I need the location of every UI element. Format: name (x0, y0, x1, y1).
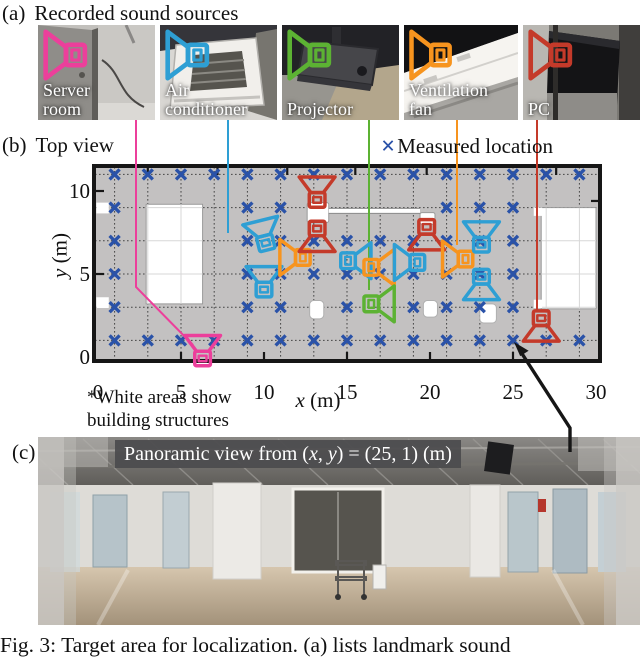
measured-location-mark (442, 302, 452, 312)
photo-pc: PC (523, 25, 640, 120)
measured-location-mark (442, 269, 452, 279)
speaker-air-conditioner (394, 244, 424, 280)
photo-label-server-room: Serverroom (43, 81, 90, 119)
panorama-photo: Panoramic view from (x, y) = (25, 1) (m) (38, 437, 640, 625)
y-axis-label: y (m) (48, 216, 73, 296)
measured-location-mark (309, 335, 319, 345)
measured-location-mark (408, 302, 418, 312)
section-c-label: (c) (12, 440, 35, 465)
measured-location-marker-icon: × (381, 133, 395, 160)
measured-location-mark (375, 236, 385, 246)
speaker-air-conditioner (464, 269, 500, 299)
measured-location-mark (475, 335, 485, 345)
measured-location-mark (342, 269, 352, 279)
measured-location-mark (342, 169, 352, 179)
measured-location-mark (408, 269, 418, 279)
legend-label: Measured location (397, 134, 553, 158)
measured-location-mark (110, 236, 120, 246)
x-axis-label: x (m) (258, 388, 378, 413)
speaker-air-conditioner (464, 222, 500, 252)
measured-location-mark (276, 203, 286, 213)
photo-label-air-conditioner: Airconditioner (165, 81, 247, 119)
measured-location-mark (242, 269, 252, 279)
measured-location-mark (276, 169, 286, 179)
measured-location-mark (541, 335, 551, 345)
map-structures (96, 203, 596, 323)
section-a-text: Recorded sound sources (34, 1, 238, 25)
measured-location-mark (541, 169, 551, 179)
note-line-1: *White areas show (87, 387, 232, 410)
measured-location-mark (442, 203, 452, 213)
measured-location-mark (475, 269, 485, 279)
measured-location-mark (508, 302, 518, 312)
speaker-pc (523, 311, 559, 341)
sound-source-speakers (185, 177, 559, 366)
speaker-ventilation-fan (280, 239, 310, 275)
svg-text:10: 10 (69, 179, 90, 203)
measured-location-mark (143, 169, 153, 179)
photo-row: ServerroomAirconditionerProjectorVentila… (0, 25, 640, 120)
measured-location-mark (475, 203, 485, 213)
measured-location-mark (276, 269, 286, 279)
measured-location-mark (475, 236, 485, 246)
measured-location-mark (342, 302, 352, 312)
measured-location-mark (508, 169, 518, 179)
measured-location-mark (242, 203, 252, 213)
measured-location-mark (209, 335, 219, 345)
speaker-ventilation-fan (364, 249, 394, 285)
measured-location-mark (242, 236, 252, 246)
speaker-projector (364, 286, 394, 322)
measured-location-mark (309, 169, 319, 179)
speaker-ventilation-fan (443, 241, 473, 277)
measured-location-mark (242, 169, 252, 179)
measured-location-mark (375, 335, 385, 345)
map-ticks (96, 168, 598, 359)
measured-location-mark (342, 236, 352, 246)
measured-location-mark (408, 335, 418, 345)
section-a-title: (a)Recorded sound sources (2, 1, 238, 26)
measured-location-mark (209, 169, 219, 179)
section-a-label: (a) (2, 1, 25, 25)
speaker-server-room (185, 336, 221, 366)
svg-text:5: 5 (80, 262, 91, 286)
panorama-caption: Panoramic view from (x, y) = (25, 1) (m) (115, 440, 461, 468)
measured-location-mark (110, 335, 120, 345)
measured-location-mark (375, 269, 385, 279)
photo-label-projector: Projector (287, 100, 353, 119)
measured-location-mark (508, 335, 518, 345)
measured-location-mark (242, 335, 252, 345)
speaker-pc (299, 177, 335, 207)
callout-line-pink (136, 120, 193, 345)
measured-location-mark (176, 335, 186, 345)
measured-location-mark (176, 169, 186, 179)
photo-label-ventilation-fan: Ventilationfan (409, 81, 488, 119)
measured-location-mark (342, 335, 352, 345)
measured-location-mark (110, 169, 120, 179)
measured-location-mark (442, 335, 452, 345)
measured-location-mark (508, 269, 518, 279)
photo-ventilation-fan: Ventilationfan (404, 25, 518, 120)
measured-location-mark (442, 236, 452, 246)
measured-location-mark (309, 269, 319, 279)
speaker-pc (409, 220, 445, 250)
measured-location-mark (276, 236, 286, 246)
measured-location-mark (508, 236, 518, 246)
map-border (94, 166, 600, 361)
measured-location-mark (574, 335, 584, 345)
measured-location-mark (475, 169, 485, 179)
speaker-pc (299, 221, 335, 251)
photo-air-conditioner: Airconditioner (160, 25, 277, 120)
measured-location-mark (276, 335, 286, 345)
speaker-air-conditioner (246, 267, 282, 297)
svg-text:30: 30 (586, 380, 607, 404)
photo-label-pc: PC (528, 100, 550, 119)
measured-location-mark (242, 302, 252, 312)
note-line-2: building structures (87, 410, 232, 433)
measured-location-mark (143, 335, 153, 345)
measured-location-mark (110, 302, 120, 312)
measured-location-mark (276, 302, 286, 312)
measured-location-mark (408, 236, 418, 246)
photo-server-room: Serverroom (38, 25, 155, 120)
photo-projector: Projector (282, 25, 399, 120)
measured-location-mark (442, 169, 452, 179)
location-arrow (514, 342, 570, 452)
section-b-title: (b)Top view (2, 133, 114, 158)
svg-text:25: 25 (503, 380, 524, 404)
measured-location-mark (408, 169, 418, 179)
measured-location-mark (475, 302, 485, 312)
speaker-air-conditioner (341, 243, 371, 279)
measured-location-mark (110, 203, 120, 213)
measured-location-mark (110, 269, 120, 279)
map-grid (95, 167, 599, 360)
measured-location-mark (574, 169, 584, 179)
measured-location-mark (309, 236, 319, 246)
figure-caption: Fig. 3: Target area for localization. (a… (0, 633, 640, 657)
svg-text:20: 20 (420, 380, 441, 404)
section-b-label: (b) (2, 133, 27, 157)
figure-page: (a)Recorded sound sources ServerroomAirc… (0, 0, 640, 657)
measured-location-mark (375, 169, 385, 179)
svg-text:0: 0 (80, 345, 91, 369)
speaker-air-conditioner (243, 216, 285, 254)
measured-location-mark (508, 203, 518, 213)
section-b-text: Top view (36, 133, 114, 157)
measured-locations (110, 169, 585, 345)
map-legend: ×Measured location (381, 133, 553, 161)
axis-tick-labels: 0510152025300510 (69, 179, 607, 404)
map-note: *White areas show building structures (87, 387, 232, 433)
